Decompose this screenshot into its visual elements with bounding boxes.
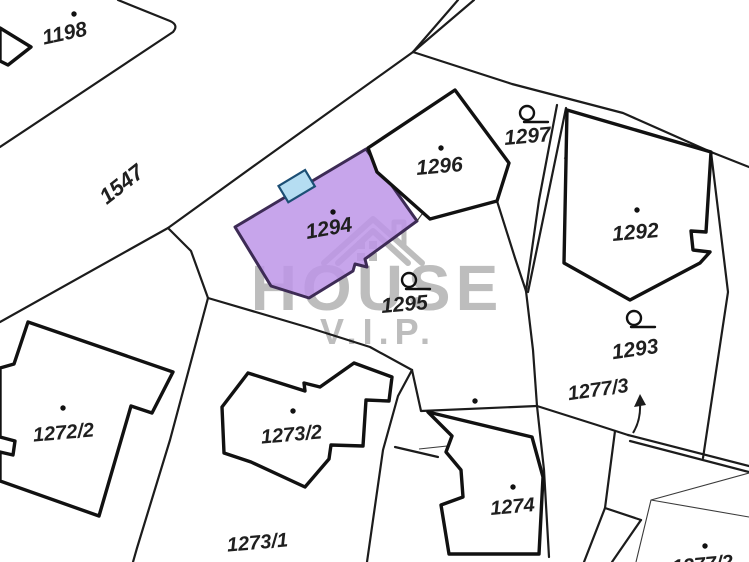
road-edge-double-line bbox=[628, 435, 749, 466]
parcel-point-1273-2 bbox=[290, 408, 295, 413]
building-loop-symbol-1293 bbox=[627, 311, 655, 327]
parcel-label-1198: 1198 bbox=[40, 18, 89, 50]
parcel-label-1296: 1296 bbox=[415, 153, 464, 180]
parcel-point-1274 bbox=[510, 484, 515, 489]
parcel-point-1292 bbox=[634, 207, 639, 212]
building-1292 bbox=[564, 110, 711, 300]
parcel-label-1277-3: 1277/3 bbox=[566, 375, 630, 405]
parcel-label-1292: 1292 bbox=[611, 219, 660, 246]
watermark-vip-text: V.I.P. bbox=[320, 311, 436, 352]
parcel-label-1295: 1295 bbox=[380, 291, 429, 318]
building-1198 bbox=[0, 28, 31, 65]
parcel-label-1293: 1293 bbox=[610, 335, 660, 364]
parcel-label-1277-2: 1277/2 bbox=[671, 551, 734, 562]
parcel-label-1547: 1547 bbox=[94, 158, 149, 209]
parcel-point-1277-2 bbox=[702, 543, 707, 548]
cadastral-map-canvas: HOUSE V.I.P. bbox=[0, 0, 749, 562]
parcel-point-1294 bbox=[330, 209, 335, 214]
unlabeled-parcel-point-0 bbox=[472, 398, 477, 403]
parcel-point-1272-2 bbox=[60, 405, 65, 410]
parcel-reference-arrow bbox=[633, 394, 646, 433]
parcel-label-1297: 1297 bbox=[503, 123, 553, 150]
cadastral-map: HOUSE V.I.P. bbox=[0, 0, 749, 562]
parcel-point-1198 bbox=[71, 11, 76, 16]
parcel-point-1296 bbox=[438, 145, 443, 150]
parcel-label-1273-1: 1273/1 bbox=[226, 529, 289, 556]
building-loop-symbol-1297 bbox=[520, 106, 548, 122]
parcel-label-1274: 1274 bbox=[489, 494, 535, 520]
building-1274 bbox=[428, 412, 543, 554]
